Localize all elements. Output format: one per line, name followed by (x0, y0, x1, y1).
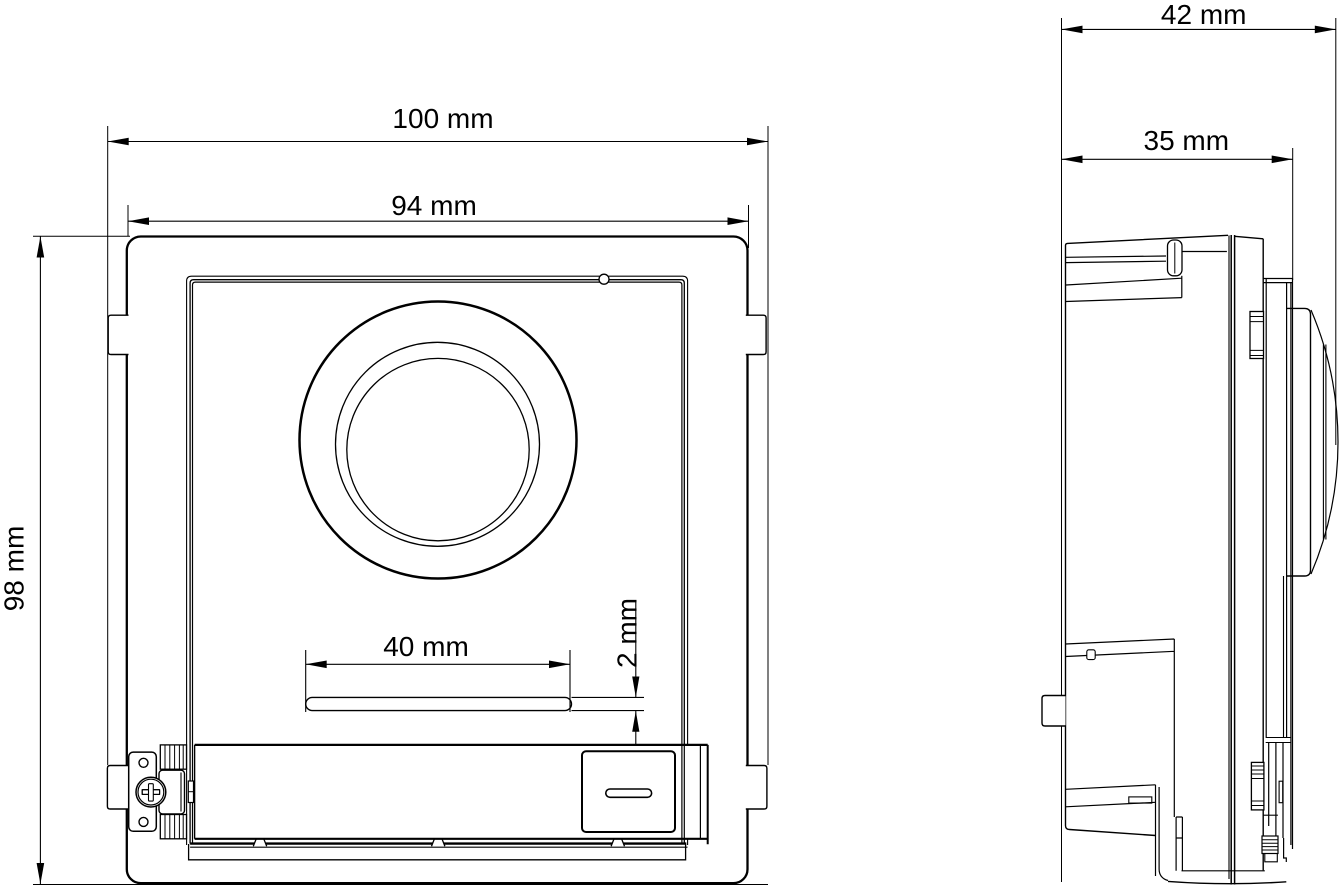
svg-text:42 mm: 42 mm (1161, 0, 1247, 30)
svg-text:2 mm: 2 mm (612, 598, 643, 668)
svg-text:100 mm: 100 mm (392, 103, 493, 134)
svg-text:35 mm: 35 mm (1144, 125, 1230, 156)
svg-text:94 mm: 94 mm (391, 190, 477, 221)
svg-text:40 mm: 40 mm (383, 631, 469, 662)
svg-text:98 mm: 98 mm (0, 526, 30, 612)
